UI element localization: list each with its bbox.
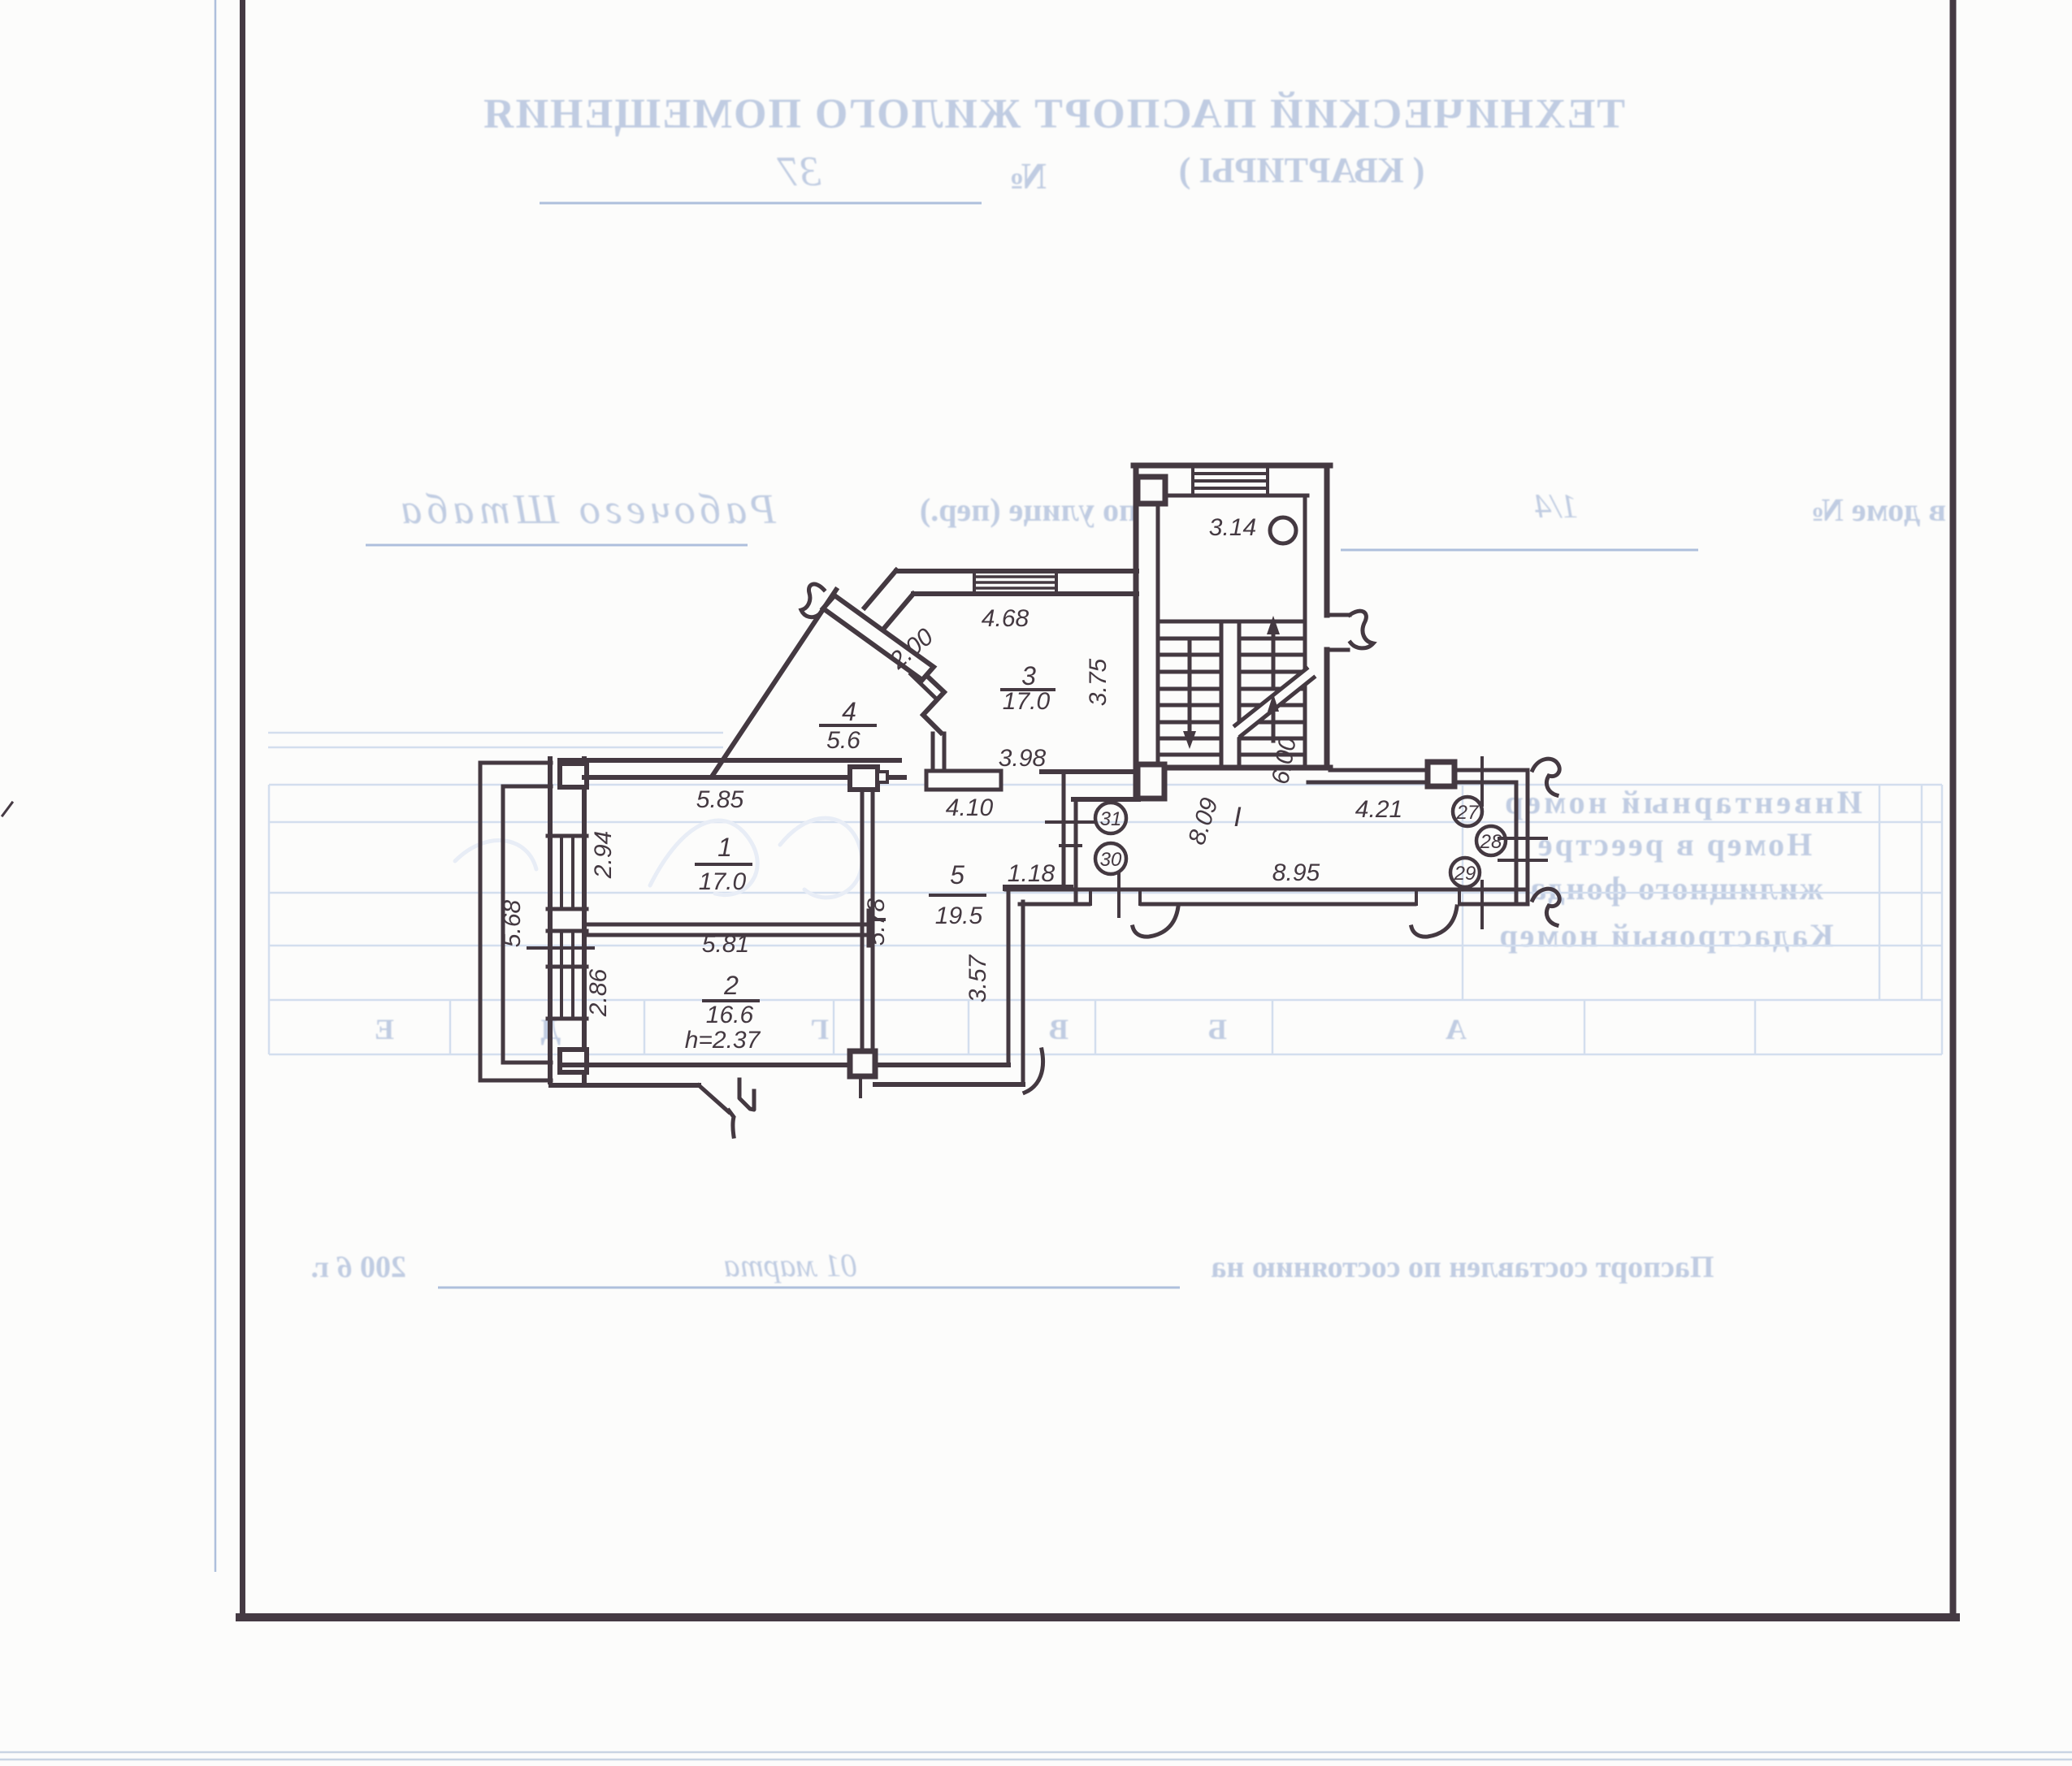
svg-text:8.95: 8.95 [1272, 859, 1320, 886]
svg-text:4: 4 [842, 697, 856, 726]
svg-text:3.57: 3.57 [964, 954, 991, 1002]
svg-text:5.85: 5.85 [696, 786, 744, 813]
svg-text:5: 5 [950, 860, 964, 889]
svg-text:5.68: 5.68 [499, 899, 526, 947]
svg-text:19.5: 19.5 [935, 902, 983, 929]
svg-text:17.0: 17.0 [1003, 688, 1051, 715]
svg-text:30: 30 [1100, 849, 1122, 871]
svg-text:I: I [1233, 802, 1242, 833]
svg-text:h=2.37: h=2.37 [685, 1027, 761, 1054]
svg-text:5.78: 5.78 [863, 898, 890, 946]
svg-text:3.75: 3.75 [1085, 658, 1112, 706]
svg-text:31: 31 [1100, 808, 1122, 830]
svg-text:8.09: 8.09 [1183, 794, 1224, 848]
svg-text:27: 27 [1456, 802, 1480, 824]
svg-text:2.86: 2.86 [585, 968, 612, 1017]
svg-text:4.21: 4.21 [1355, 796, 1402, 823]
svg-text:28: 28 [1480, 831, 1502, 853]
svg-text:5.6: 5.6 [826, 727, 860, 754]
svg-text:3.98: 3.98 [999, 745, 1047, 772]
svg-text:3: 3 [1021, 661, 1036, 690]
svg-text:1.18: 1.18 [1008, 860, 1056, 887]
svg-text:4.68: 4.68 [982, 605, 1029, 632]
svg-text:1: 1 [717, 833, 732, 862]
svg-text:2.94: 2.94 [590, 831, 617, 879]
svg-text:5.81: 5.81 [702, 931, 749, 958]
svg-text:29: 29 [1454, 863, 1476, 885]
svg-text:3.14: 3.14 [1209, 514, 1256, 541]
svg-text:16.6: 16.6 [706, 1002, 754, 1028]
svg-text:4.10: 4.10 [946, 794, 994, 821]
svg-text:17.0: 17.0 [699, 868, 747, 895]
svg-text:2: 2 [723, 971, 739, 1000]
